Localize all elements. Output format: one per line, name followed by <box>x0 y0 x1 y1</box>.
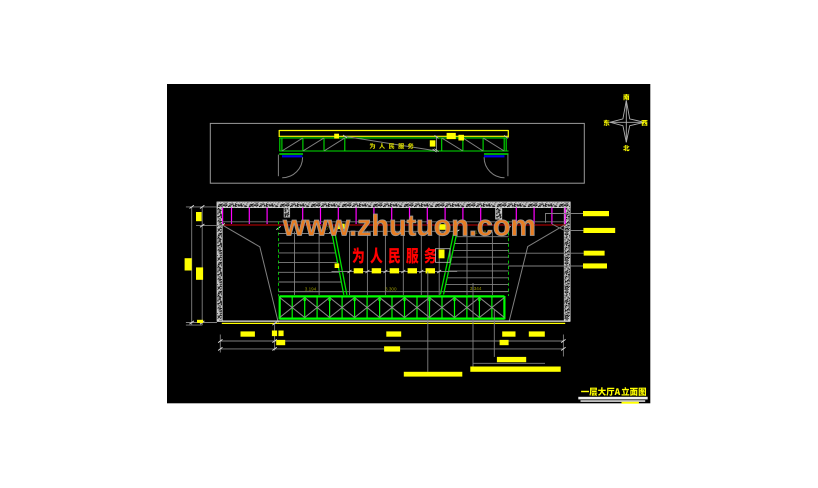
svg-text:3.300: 3.300 <box>385 287 397 292</box>
svg-text:3.344: 3.344 <box>470 286 482 291</box>
svg-text:www.zhutuon.com: www.zhutuon.com <box>282 209 536 242</box>
svg-text:3.194: 3.194 <box>305 287 317 292</box>
